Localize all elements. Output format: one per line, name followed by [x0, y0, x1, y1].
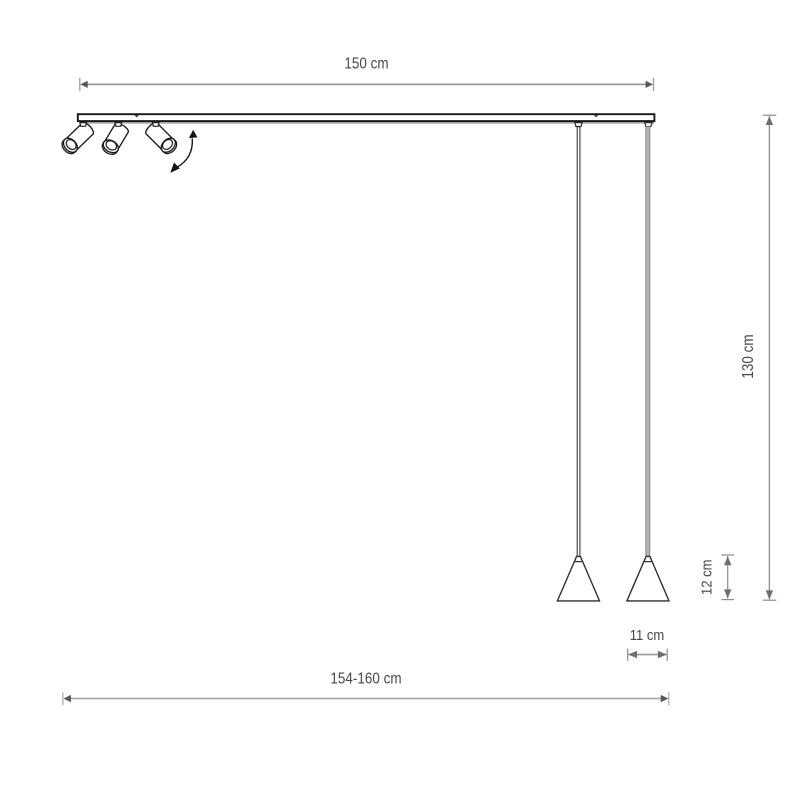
svg-text:130 cm: 130 cm — [740, 334, 757, 378]
svg-text:11 cm: 11 cm — [630, 626, 665, 643]
svg-text:154-160 cm: 154-160 cm — [330, 670, 401, 687]
svg-text:12 cm: 12 cm — [697, 560, 714, 596]
svg-text:150 cm: 150 cm — [344, 56, 388, 73]
